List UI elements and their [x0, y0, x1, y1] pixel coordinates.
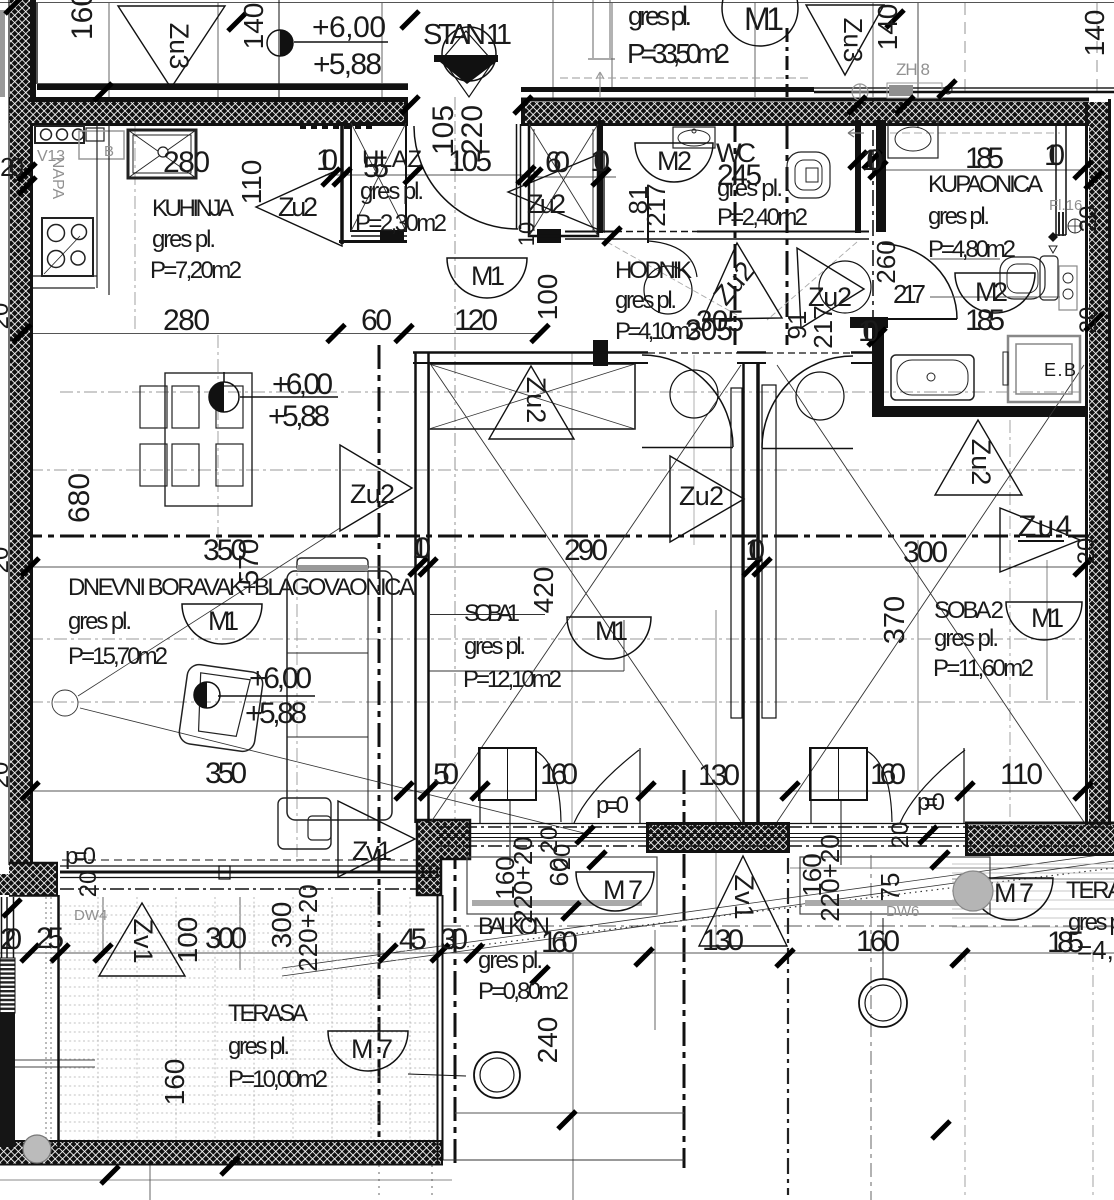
svg-text:220+20: 220+20: [293, 884, 323, 971]
svg-text:10: 10: [862, 144, 883, 177]
svg-text:110: 110: [236, 160, 267, 205]
svg-text:20: 20: [0, 923, 22, 956]
svg-text:M1: M1: [208, 606, 239, 636]
svg-text:SOBA 2: SOBA 2: [934, 597, 1004, 624]
svg-text:10: 10: [412, 532, 431, 565]
svg-text:10: 10: [316, 144, 338, 177]
svg-text:DW6: DW6: [886, 903, 919, 920]
svg-text:130: 130: [698, 759, 740, 792]
svg-text:Zu4: Zu4: [1018, 510, 1072, 543]
svg-text:140: 140: [238, 3, 269, 50]
svg-text:HODNIK: HODNIK: [615, 257, 692, 284]
svg-text:160: 160: [541, 926, 578, 959]
svg-text:160: 160: [856, 925, 900, 958]
svg-text:gres pl.: gres pl.: [934, 625, 999, 652]
svg-text:P=2,30m2: P=2,30m2: [355, 210, 447, 237]
svg-text:SOBA 1: SOBA 1: [464, 600, 520, 627]
svg-text:370: 370: [879, 596, 911, 644]
svg-text:160: 160: [870, 758, 906, 791]
svg-text:100: 100: [532, 274, 563, 321]
svg-text:gres pl.: gres pl.: [228, 1033, 290, 1060]
svg-text:gres pl.: gres pl.: [68, 608, 132, 635]
svg-text:M7: M7: [603, 875, 643, 905]
svg-text:260: 260: [871, 240, 901, 283]
svg-text:Zu3: Zu3: [164, 23, 194, 70]
svg-text:10: 10: [590, 145, 610, 178]
svg-text:NAPA: NAPA: [49, 157, 66, 200]
svg-text:=4,0: =4,0: [1077, 935, 1114, 965]
svg-text:P=33,50m2: P=33,50m2: [627, 38, 730, 69]
svg-text:10: 10: [858, 315, 879, 348]
svg-text:20: 20: [1073, 538, 1100, 565]
svg-text:DNEVNI BORAVAK+BLAGOVAONICA: DNEVNI BORAVAK+BLAGOVAONICA: [68, 574, 415, 601]
svg-text:+6,00: +6,00: [312, 11, 386, 44]
svg-text:290: 290: [564, 534, 608, 567]
svg-text:680: 680: [63, 473, 96, 523]
svg-text:60: 60: [361, 304, 392, 337]
svg-text:100: 100: [172, 917, 203, 964]
svg-text:60: 60: [544, 858, 574, 887]
svg-text:ZH 8: ZH 8: [896, 60, 930, 79]
svg-text:M7: M7: [351, 1034, 393, 1064]
svg-text:160: 160: [159, 1059, 190, 1106]
svg-text:DW4: DW4: [74, 907, 107, 924]
svg-text:20: 20: [0, 762, 14, 789]
svg-text:P=7,20m2: P=7,20m2: [150, 257, 242, 284]
svg-text:gres pl.: gres pl.: [1068, 909, 1114, 936]
svg-text:160: 160: [540, 758, 578, 791]
svg-text:P=0,80m2: P=0,80m2: [478, 978, 569, 1005]
svg-text:Zu2: Zu2: [278, 192, 318, 222]
svg-text:+5,88: +5,88: [268, 400, 330, 433]
svg-text:P=11,60m2: P=11,60m2: [933, 655, 1034, 682]
svg-text:E.B: E.B: [1044, 360, 1076, 380]
svg-text:300: 300: [205, 922, 247, 955]
svg-text:B: B: [104, 143, 114, 160]
svg-text:Zu2: Zu2: [679, 481, 724, 511]
svg-text:10: 10: [745, 534, 765, 567]
svg-text:M1: M1: [471, 261, 505, 291]
svg-text:gres pl.: gres pl.: [615, 287, 677, 314]
svg-text:20: 20: [0, 152, 24, 182]
svg-text:P=15,70m2: P=15,70m2: [68, 643, 168, 670]
svg-text:gres pl.: gres pl.: [628, 1, 692, 31]
svg-text:Zu2: Zu2: [521, 377, 551, 424]
svg-text:220+20: 220+20: [508, 836, 538, 923]
svg-text:gres pl.: gres pl.: [717, 175, 783, 202]
svg-text:P=2,40m2: P=2,40m2: [717, 204, 808, 231]
svg-text:Zu3: Zu3: [838, 18, 868, 63]
svg-text:10: 10: [514, 222, 539, 246]
svg-text:20: 20: [75, 871, 102, 898]
svg-text:Zv1: Zv1: [352, 836, 392, 866]
svg-text:M2: M2: [657, 146, 692, 176]
svg-text:+6,00: +6,00: [272, 368, 333, 401]
svg-text:185: 185: [965, 304, 1005, 337]
svg-text:TERASA: TERASA: [1066, 877, 1114, 904]
svg-text:217: 217: [808, 305, 838, 348]
svg-text:KUPAONICA: KUPAONICA: [928, 171, 1043, 198]
svg-text:217: 217: [641, 183, 671, 226]
svg-text:75: 75: [875, 873, 905, 902]
svg-text:Zv1: Zv1: [729, 874, 759, 919]
svg-text:45: 45: [399, 923, 427, 956]
svg-text:55: 55: [363, 151, 389, 184]
svg-text:M1: M1: [1031, 603, 1064, 633]
svg-text:KUHINJA: KUHINJA: [152, 195, 234, 222]
svg-text:P=12,10m2: P=12,10m2: [463, 666, 562, 693]
svg-text:M1: M1: [595, 616, 628, 646]
svg-text:10: 10: [1044, 139, 1065, 172]
svg-text:Zu2: Zu2: [350, 479, 395, 509]
svg-text:20: 20: [0, 547, 14, 574]
svg-text:Fl.16: Fl.16: [1049, 197, 1082, 214]
svg-text:+5,88: +5,88: [313, 48, 382, 81]
svg-text:25: 25: [36, 922, 64, 955]
svg-text:30: 30: [440, 923, 468, 956]
svg-text:P=10,00m2: P=10,00m2: [228, 1066, 328, 1093]
svg-text:105: 105: [448, 145, 492, 178]
svg-text:STAN 11: STAN 11: [423, 19, 512, 51]
svg-text:p=0: p=0: [65, 843, 96, 870]
svg-text:130: 130: [702, 924, 744, 957]
svg-text:P=4,80m2: P=4,80m2: [928, 236, 1016, 263]
svg-text:gres pl.: gres pl.: [152, 226, 216, 253]
svg-text:20: 20: [0, 303, 14, 330]
svg-text:M7: M7: [994, 878, 1034, 908]
svg-text:350: 350: [205, 757, 247, 790]
svg-text:Zu2: Zu2: [527, 189, 566, 219]
svg-text:+5,88: +5,88: [245, 697, 307, 730]
svg-text:Zv1: Zv1: [128, 918, 158, 963]
svg-text:110: 110: [1000, 758, 1043, 791]
svg-text:420: 420: [528, 567, 559, 614]
svg-text:140: 140: [1079, 10, 1110, 57]
svg-text:gres pl.: gres pl.: [464, 633, 526, 660]
svg-text:20: 20: [887, 822, 914, 849]
svg-text:+6,00: +6,00: [249, 662, 312, 695]
svg-text:160: 160: [66, 0, 99, 40]
svg-text:280: 280: [163, 304, 210, 337]
svg-text:305: 305: [696, 305, 744, 338]
svg-text:20: 20: [1075, 307, 1102, 334]
svg-text:140: 140: [872, 4, 903, 51]
svg-text:BALKON: BALKON: [478, 913, 550, 940]
svg-text:gres pl.: gres pl.: [478, 947, 543, 974]
svg-text:gres pl.: gres pl.: [928, 203, 990, 230]
svg-text:120: 120: [454, 304, 498, 337]
svg-text:p=0: p=0: [917, 789, 945, 816]
svg-text:p=0: p=0: [596, 792, 629, 819]
svg-text:280: 280: [163, 146, 210, 179]
svg-text:M2: M2: [975, 277, 1008, 307]
svg-text:300: 300: [903, 536, 948, 569]
svg-text:240: 240: [532, 1017, 563, 1064]
svg-text:Zu2: Zu2: [966, 439, 996, 486]
svg-text:TERASA: TERASA: [228, 1000, 308, 1027]
svg-text:220+20: 220+20: [815, 834, 845, 921]
svg-text:50: 50: [433, 758, 459, 791]
svg-text:M1: M1: [744, 1, 784, 37]
svg-text:60: 60: [545, 146, 570, 179]
